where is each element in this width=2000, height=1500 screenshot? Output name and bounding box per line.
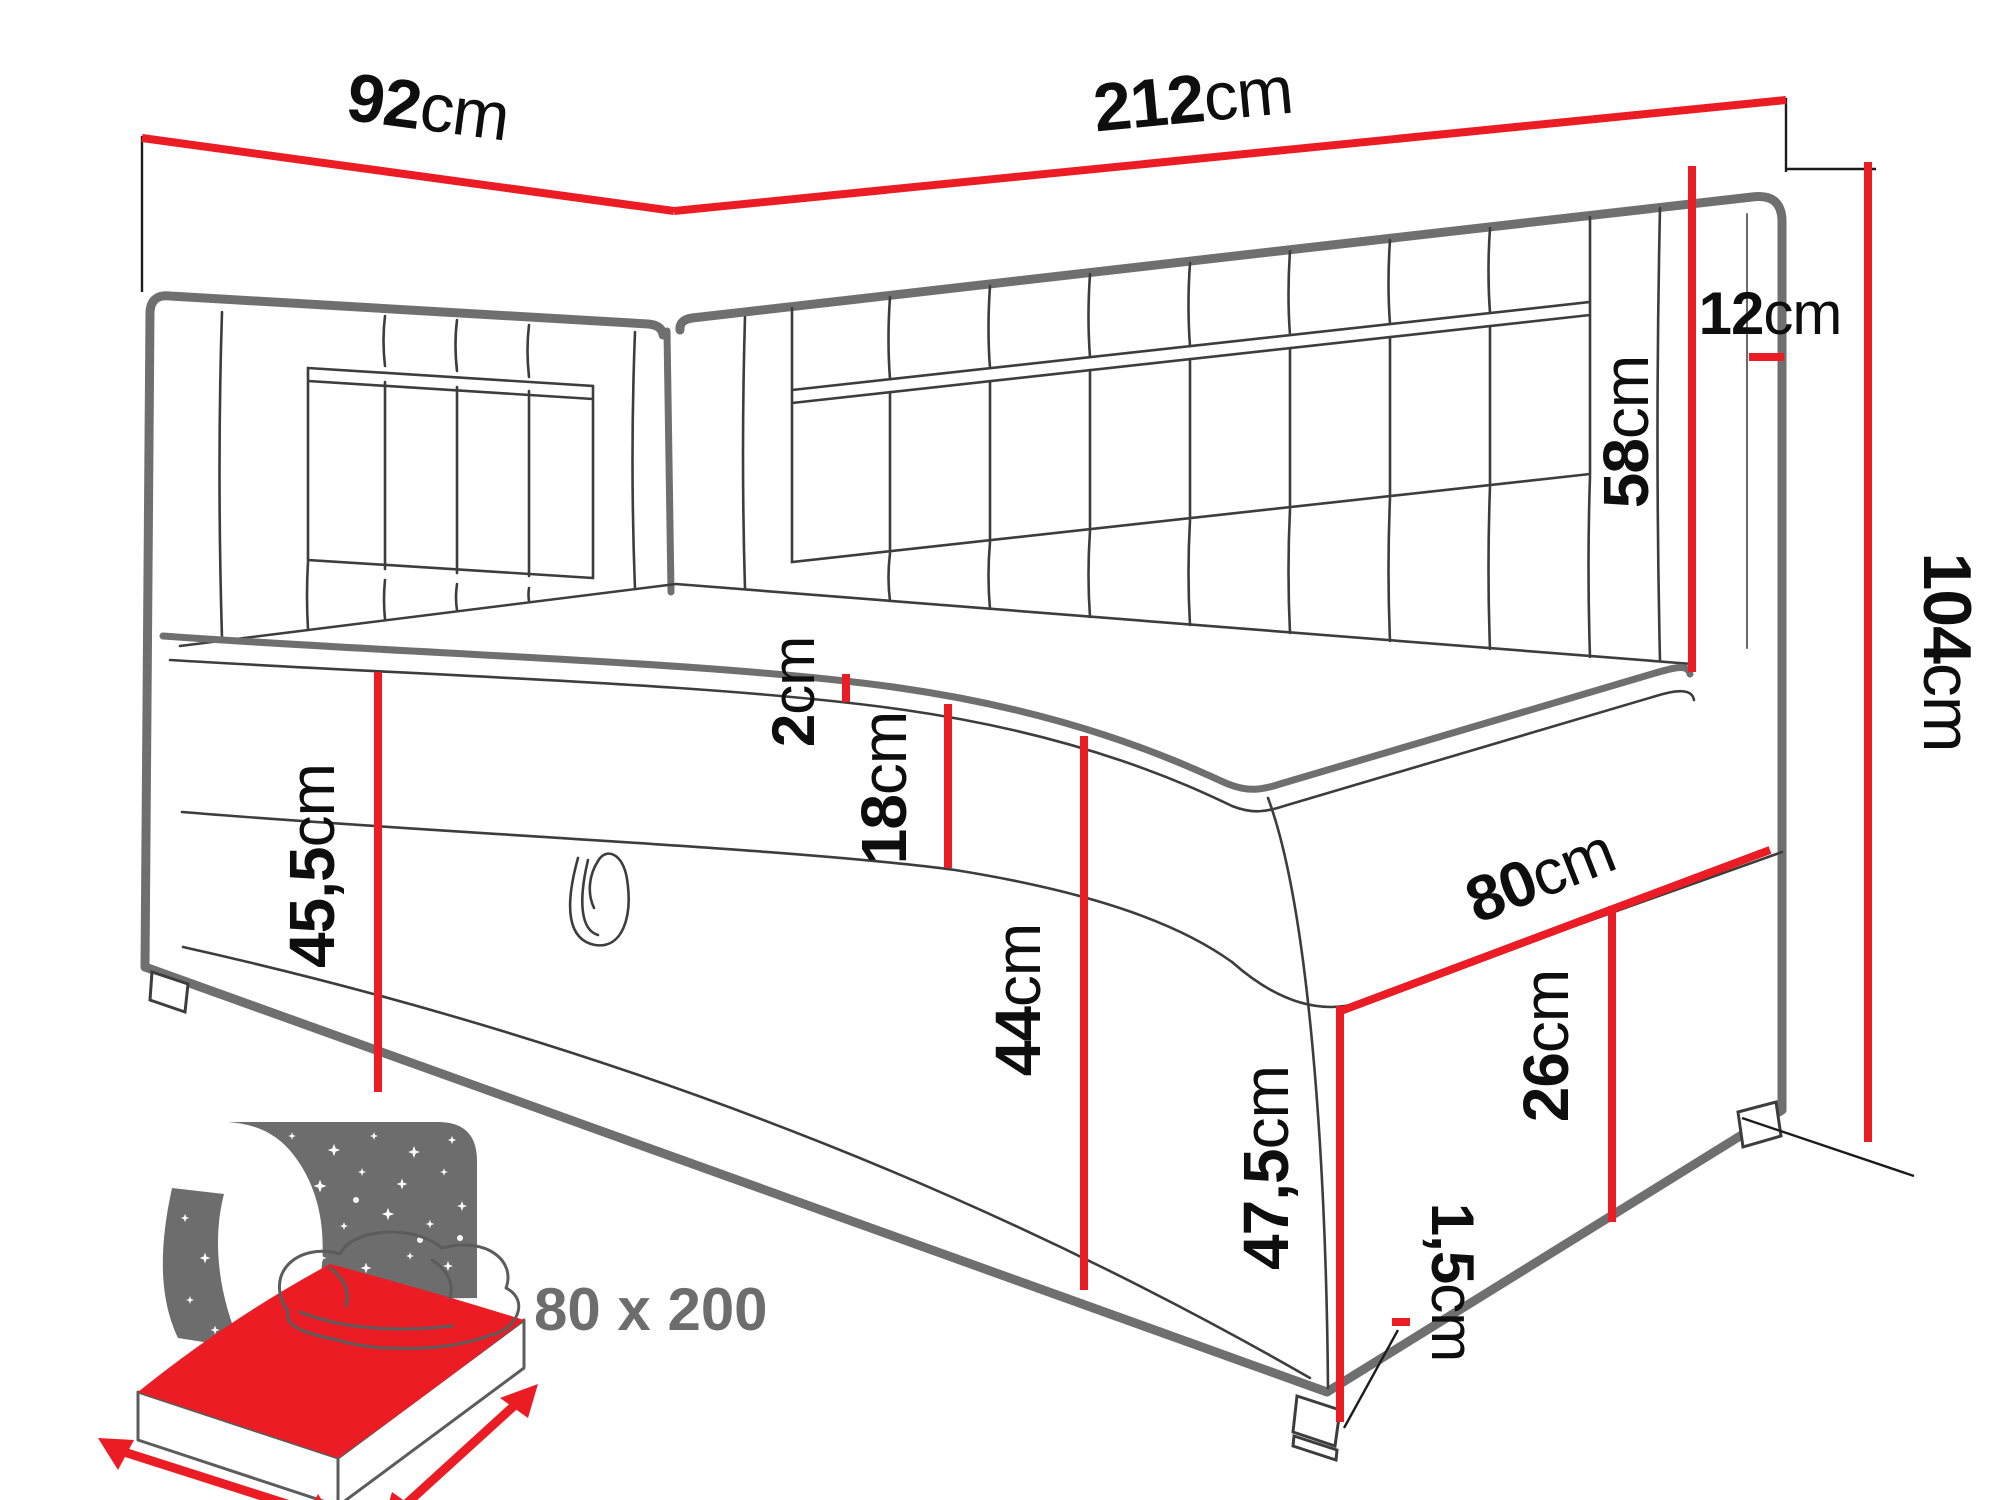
headboard-back-outline: [680, 196, 1782, 1110]
ext-line-bottom-right: [1742, 1118, 1914, 1176]
dim-104-label: 104cm: [1909, 552, 1985, 751]
diagram-canvas: 92cm 212cm 12cm 58cm 104cm 2cm 18cm 44cm…: [0, 0, 2000, 1500]
dimension-labels: 92cm 212cm 12cm 58cm 104cm 2cm 18cm 44cm…: [276, 52, 1985, 1361]
dim-92-label: 92cm: [343, 59, 514, 156]
dim-12-label: 12cm: [1699, 280, 1842, 347]
mattress: [163, 584, 1694, 962]
headboard-back-channels-upper: [743, 208, 1660, 661]
dim-47-5-label: 47,5cm: [1230, 1066, 1302, 1270]
headboard-corner-seam: [667, 331, 671, 592]
dim-45-5-label: 45,5cm: [276, 764, 348, 968]
icon-headboard-wedge: [163, 1188, 242, 1348]
dim-92-line: [142, 138, 674, 211]
headboard-back-channels-lower: [889, 476, 1591, 657]
dim-2-label: 2cm: [760, 637, 827, 747]
dim-58-label: 58cm: [1590, 356, 1662, 509]
dim-26-label: 26cm: [1510, 970, 1582, 1123]
sleeping-area-label: 80 x 200: [534, 1276, 768, 1343]
headboard-left: [145, 296, 671, 967]
dim-44-label: 44cm: [982, 924, 1054, 1077]
headboard-left-panel-channels: [385, 382, 529, 576]
headboard-back: [680, 196, 1782, 1110]
headboard-left-channels-upper: [220, 312, 636, 638]
drawer-handle-icon: [570, 854, 628, 946]
dim-18-label: 18cm: [848, 712, 920, 865]
ext-line-top-right: [1786, 98, 1876, 172]
headboard-left-panel: [308, 368, 593, 578]
topper-bottom-edge: [170, 660, 1694, 811]
dim-212-label: 212cm: [1090, 52, 1295, 147]
headboard-back-panel-channels: [890, 326, 1490, 551]
dim-1-5-label: 1,5cm: [1419, 1203, 1486, 1361]
sleeping-area-icon: 80 x 200: [98, 1122, 768, 1500]
